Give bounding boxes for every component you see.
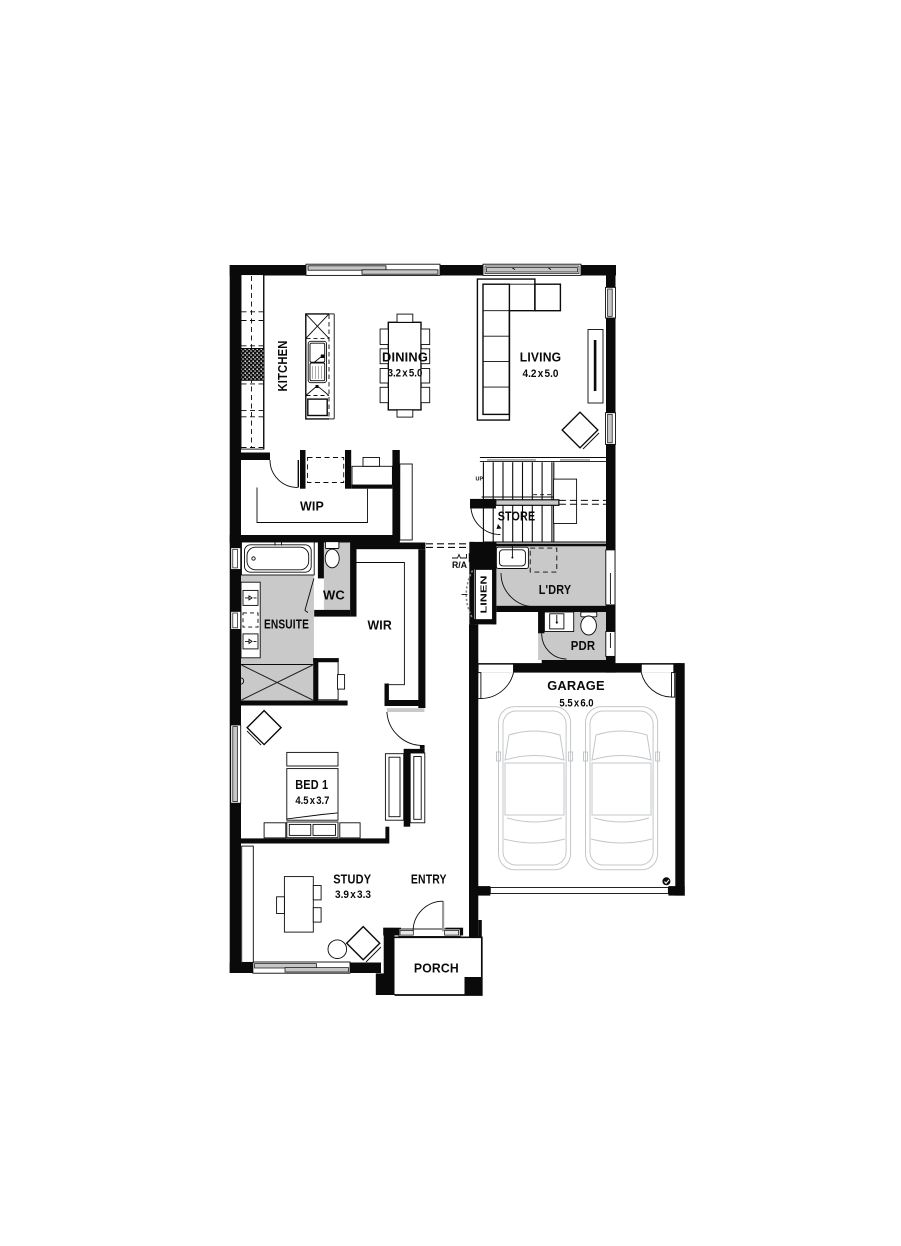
svg-text:3.2 x 5.0: 3.2 x 5.0 [388, 368, 423, 380]
svg-text:UP: UP [476, 477, 484, 483]
svg-text:PDR: PDR [571, 638, 596, 653]
svg-text:R/A: R/A [452, 560, 468, 570]
svg-text:L'DRY: L'DRY [539, 582, 572, 597]
svg-text:LINEN: LINEN [479, 575, 488, 613]
svg-text:LIVING: LIVING [520, 350, 562, 365]
svg-text:PORCH: PORCH [414, 960, 459, 975]
svg-text:STUDY: STUDY [333, 872, 371, 887]
svg-text:ENTRY: ENTRY [411, 872, 447, 887]
svg-text:ENSUITE: ENSUITE [264, 617, 309, 632]
svg-text:GARAGE: GARAGE [547, 678, 605, 693]
svg-text:DINING: DINING [382, 350, 428, 365]
svg-text:WIR: WIR [367, 618, 392, 633]
svg-text:BED 1: BED 1 [295, 777, 328, 792]
svg-text:4.5 x 3.7: 4.5 x 3.7 [295, 795, 329, 807]
svg-text:5.5 x 6.0: 5.5 x 6.0 [559, 698, 593, 710]
svg-text:KITCHEN: KITCHEN [275, 341, 290, 392]
svg-text:4.2 x 5.0: 4.2 x 5.0 [523, 368, 559, 380]
svg-text:3.9 x 3.3: 3.9 x 3.3 [335, 889, 371, 901]
svg-text:WIP: WIP [300, 499, 324, 514]
svg-text:WC: WC [323, 588, 345, 603]
svg-text:STORE: STORE [498, 509, 536, 524]
